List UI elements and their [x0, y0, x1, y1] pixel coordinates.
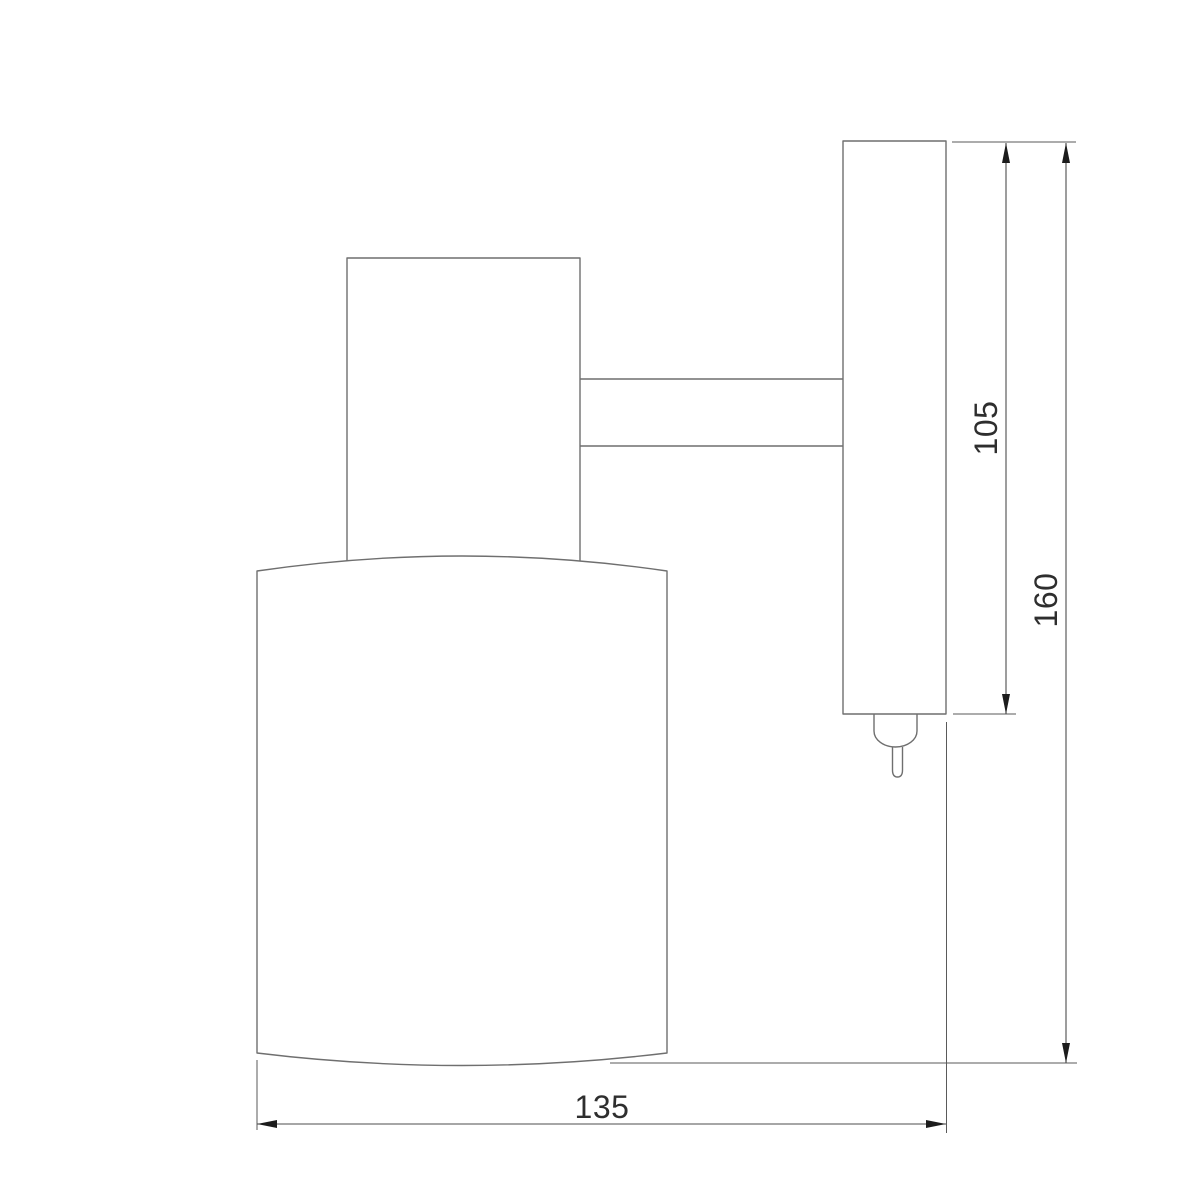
switch-pull-stem [893, 747, 903, 777]
lamp-geometry [257, 141, 946, 1066]
arrow-left-icon [257, 1120, 277, 1128]
dimension-backplate-height: 105 [968, 143, 1010, 714]
arrow-right-icon [926, 1120, 946, 1128]
arrow-up-icon [1062, 143, 1070, 163]
dimension-text-105: 105 [968, 401, 1004, 456]
arrow-up-icon [1002, 143, 1010, 163]
wall-mount-plate [843, 141, 946, 714]
toggle-switch-housing [874, 714, 917, 747]
arrow-down-icon [1062, 1043, 1070, 1063]
technical-drawing-canvas: 105 160 135 [0, 0, 1200, 1200]
lamp-body-cylinder [347, 258, 580, 570]
dimension-overall-height: 160 [1028, 143, 1070, 1063]
wall-lamp-dimension-drawing: 105 160 135 [0, 0, 1200, 1200]
dimension-text-135: 135 [575, 1089, 630, 1125]
dimension-overall-depth: 135 [257, 1089, 946, 1128]
dimension-text-160: 160 [1028, 573, 1064, 628]
mounting-arm [580, 379, 843, 446]
arrow-down-icon [1002, 694, 1010, 714]
lamp-shade [257, 556, 667, 1066]
